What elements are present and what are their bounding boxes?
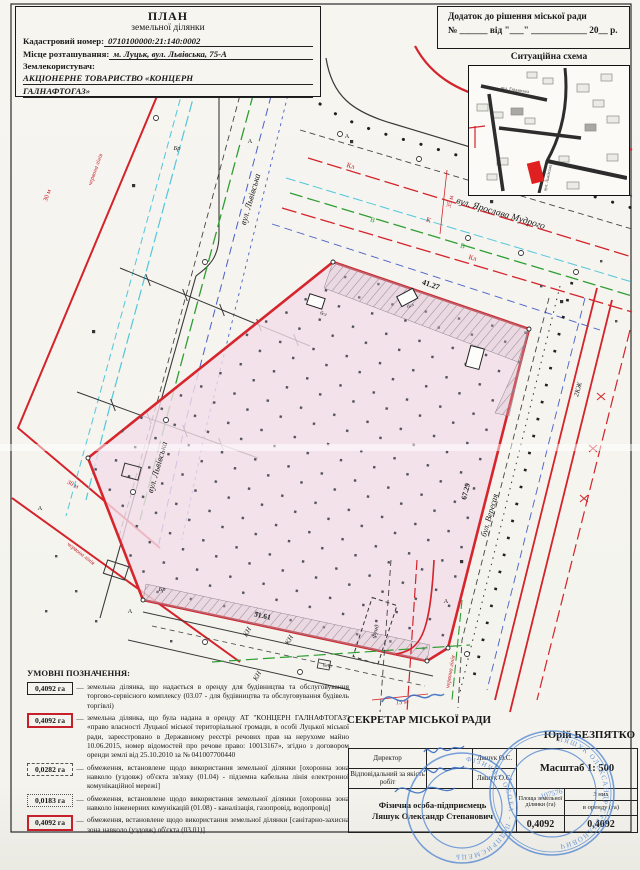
legend-area-value: 0,4092 га <box>27 815 73 830</box>
legend-item-text: обмеження, встановлене щодо використання… <box>87 815 349 834</box>
cell-scale: Масштаб 1: 500 <box>517 749 637 789</box>
fop-line2: Ляшук Олександр Степанович <box>372 811 493 821</box>
label-a-2: А <box>345 133 350 140</box>
location-value: м. Луцьк, вул. Львівська, 75-А <box>109 49 313 60</box>
scheme-map: вул. Гнідавська вул. Ярослава Мудрого ву… <box>469 66 627 193</box>
legend-area-value: 0,4092 га <box>27 713 73 728</box>
landuser-value-line2: ГАЛНАФТОГАЗ» <box>23 86 313 98</box>
dim-15m: 15 м <box>396 699 409 707</box>
label-v-1: В <box>369 216 376 225</box>
cell-director-label: Директор <box>349 749 427 769</box>
legend-item: 0,4092 га — обмеження, встановлене щодо … <box>27 815 349 834</box>
secretary-title: СЕКРЕТАР МІСЬКОЇ РАДИ <box>347 714 491 726</box>
legend-item: 0,0183 га — обмеження, встановлене щодо … <box>27 794 349 813</box>
legend-item: 0,4092 га — земельна ділянка, що надаєть… <box>27 682 349 710</box>
red-line-label-1: червона лінія <box>88 153 105 186</box>
label-a-3: А <box>128 608 133 615</box>
cell-director-name: Ляшук О.С. <box>473 749 517 769</box>
cell-lease-header: З них в оренду (га) <box>565 789 637 816</box>
title-block: ПЛАН земельної ділянки Кадастровий номер… <box>15 6 321 97</box>
legend: УМОВНІ ПОЗНАЧЕННЯ: 0,4092 га — земельна … <box>27 668 349 837</box>
legend-area-value: 0,4092 га <box>27 682 73 695</box>
label-br-1: Бр <box>172 145 181 152</box>
cell-director-signature <box>427 749 473 769</box>
dim-top: 41.27 <box>421 277 441 291</box>
scheme-red-lines <box>469 126 485 148</box>
scan-seam <box>0 444 640 451</box>
legend-item-text: земельна ділянка, що була надана в оренд… <box>87 713 349 760</box>
scanned-land-plan-document: вул. Львівська вул. Львівська вул. Яросл… <box>0 0 640 870</box>
location-label: Місце розташування: <box>23 49 109 60</box>
legend-item: 0,4092 га — земельна ділянка, що була на… <box>27 713 349 760</box>
landuser-label: Землекористувач: <box>23 61 95 71</box>
cell-lease-value: 0,4092 <box>565 816 637 832</box>
cell-area-value: 0,4092 <box>517 816 565 832</box>
cell-responsible-signature <box>427 769 473 789</box>
fop-line1: Фізична особа-підприємець <box>379 800 487 810</box>
legend-item: 0,0282 га — обмеження, встановлене щодо … <box>27 763 349 791</box>
dim-35m: 35 м <box>446 195 456 209</box>
street-label-lvivska: вул. Львівська <box>238 172 262 226</box>
doc-title: ПЛАН <box>23 9 313 24</box>
cell-responsible-name: Ляшук О.С. <box>473 769 517 789</box>
scheme-title: Ситуаційна схема <box>468 52 630 62</box>
cadastral-label: Кадастровий номер: <box>23 36 104 47</box>
annex-line2: № ______ від "___" ____________ 20__ р. <box>448 25 629 39</box>
secretary-name: Юрій БЕЗПЯТКО <box>347 729 635 741</box>
scheme-street-main: вул. Ярослава Мудрого <box>564 162 608 175</box>
scheme-site-marker <box>527 161 545 185</box>
cell-responsible-label: Відповідальний за якість робіт <box>349 769 427 789</box>
cell-fop: Фізична особа-підприємець Ляшук Олександ… <box>349 789 517 832</box>
label-a-1: А <box>248 138 253 145</box>
situational-scheme: вул. Гнідавська вул. Ярослава Мудрого ву… <box>468 65 630 196</box>
lease-header-top: З них <box>565 789 637 801</box>
cadastral-value: 0710100000:21:140:0002 <box>104 36 313 47</box>
label-k: К <box>425 216 432 225</box>
doc-subtitle: земельної ділянки <box>23 23 313 33</box>
label-kn-1: КН <box>241 625 254 639</box>
legend-item-text: обмеження, встановлене щодо використання… <box>87 794 349 813</box>
label-a-5: А <box>38 505 43 512</box>
lease-header-bottom: в оренду (га) <box>565 801 637 815</box>
legend-area-value: 0,0282 га <box>27 763 73 776</box>
label-br-2: Бр <box>157 586 166 593</box>
signature-table: Директор Ляшук О.С. Масштаб 1: 500 Відпо… <box>348 748 638 833</box>
legend-area-value: 0,0183 га <box>27 794 73 807</box>
annex-line1: Додаток до рішення міської ради <box>448 11 629 25</box>
annex-box: Додаток до рішення міської ради № ______… <box>437 6 630 49</box>
legend-title: УМОВНІ ПОЗНАЧЕННЯ: <box>27 668 349 679</box>
landuser-value-line1: АКЦІОНЕРНЕ ТОВАРИСТВО «КОНЦЕРН <box>23 73 313 85</box>
label-a-4: А <box>444 598 449 605</box>
label-kl-1: Кл <box>468 253 479 263</box>
street-label-mudrogo: вул. Ярослава Мудрого <box>455 195 547 232</box>
legend-item-text: земельна ділянка, що надається в оренду … <box>87 682 349 710</box>
dim-30m-1: 30 м <box>42 189 53 203</box>
cell-area-header: Площа земельної ділянки (га) <box>517 789 565 816</box>
legend-item-text: обмеження, встановлене щодо використання… <box>87 763 349 791</box>
dim-30m-2: 30 м <box>66 479 80 491</box>
